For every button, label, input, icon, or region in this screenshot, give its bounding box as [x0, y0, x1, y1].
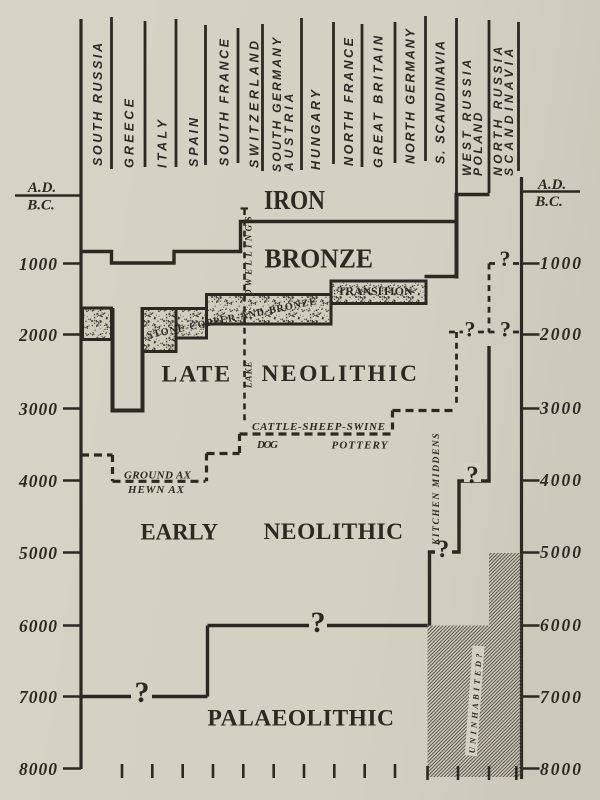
svg-text:GREECE: GREECE	[123, 97, 137, 168]
svg-text:GROUND AX: GROUND AX	[124, 470, 192, 482]
svg-text:?: ?	[500, 317, 511, 342]
svg-text:?: ?	[465, 317, 476, 342]
svg-text:HUNGARY: HUNGARY	[309, 88, 323, 170]
svg-text:8000: 8000	[19, 759, 58, 779]
svg-text:CATTLE-SHEEP-SWINE: CATTLE-SHEEP-SWINE	[252, 421, 385, 433]
svg-text:PALAEOLITHIC: PALAEOLITHIC	[208, 706, 395, 732]
svg-text:6000: 6000	[19, 616, 58, 636]
svg-text:4000: 4000	[539, 470, 583, 490]
svg-text:2000: 2000	[18, 325, 58, 345]
svg-text:LATE: LATE	[162, 362, 231, 388]
svg-text:TRANSITION: TRANSITION	[338, 284, 414, 298]
svg-text:NEOLITHIC: NEOLITHIC	[262, 361, 418, 387]
svg-text:DOG: DOG	[256, 439, 278, 451]
svg-text:POTTERY: POTTERY	[332, 440, 389, 452]
svg-text:SOUTH FRANCE: SOUTH FRANCE	[218, 37, 232, 166]
svg-text:6000: 6000	[540, 615, 583, 635]
svg-text:KITCHEN MIDDENS: KITCHEN MIDDENS	[432, 433, 442, 546]
svg-text:B.C.: B.C.	[26, 198, 55, 214]
svg-text:8000: 8000	[540, 759, 583, 779]
svg-text:?: ?	[311, 606, 326, 639]
svg-text:?: ?	[135, 676, 150, 709]
svg-text:ITALY: ITALY	[156, 118, 170, 168]
svg-text:7000: 7000	[19, 687, 58, 707]
svg-text:DWELLINGS: DWELLINGS	[244, 216, 254, 297]
svg-text:1000: 1000	[19, 254, 58, 274]
svg-text:3000: 3000	[539, 398, 583, 418]
svg-text:B.C.: B.C.	[534, 194, 563, 210]
svg-text:BRONZE: BRONZE	[265, 243, 374, 274]
svg-text:NORTH GERMANY: NORTH GERMANY	[404, 27, 418, 164]
svg-text:3000: 3000	[18, 399, 58, 419]
svg-text:EARLY: EARLY	[141, 520, 219, 546]
svg-text:5000: 5000	[540, 542, 583, 562]
svg-text:LAKE: LAKE	[244, 361, 254, 389]
svg-text:NEOLITHIC: NEOLITHIC	[264, 519, 404, 545]
svg-text:IRON: IRON	[264, 185, 325, 215]
svg-text:?: ?	[500, 246, 511, 271]
svg-text:2000: 2000	[539, 324, 583, 344]
svg-text:4000: 4000	[18, 471, 58, 491]
svg-text:NORTH FRANCE: NORTH FRANCE	[342, 36, 356, 166]
svg-text:?: ?	[466, 462, 479, 489]
svg-text:1000: 1000	[540, 253, 583, 273]
svg-text:HEWN AX: HEWN AX	[127, 484, 185, 496]
svg-text:5000: 5000	[19, 543, 58, 563]
svg-text:GREAT BRITAIN: GREAT BRITAIN	[372, 34, 386, 168]
svg-text:S. SCANDINAVIA: S. SCANDINAVIA	[434, 40, 448, 164]
svg-text:SWITZERLAND: SWITZERLAND	[248, 39, 262, 168]
svg-text:SOUTH RUSSIA: SOUTH RUSSIA	[91, 41, 105, 166]
svg-text:POLAND: POLAND	[471, 112, 485, 176]
svg-text:7000: 7000	[540, 687, 583, 707]
svg-text:SPAIN: SPAIN	[187, 116, 201, 167]
svg-text:A.D.: A.D.	[27, 180, 56, 196]
